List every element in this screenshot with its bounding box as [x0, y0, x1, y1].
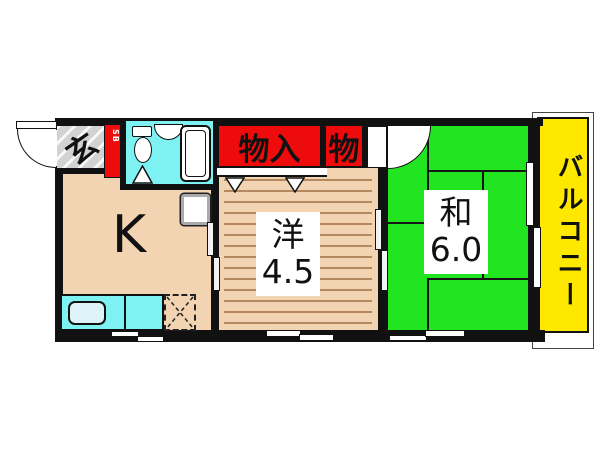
- balcony-window-sash: [533, 227, 541, 288]
- japanese-room-label: 和 6.0: [424, 190, 488, 274]
- balcony: バルコニー: [537, 117, 589, 333]
- kitchen-sink: [68, 301, 106, 325]
- sliding-door-western-japanese: [375, 209, 382, 250]
- western-room-name: 洋: [272, 217, 305, 254]
- tatami-line: [386, 222, 429, 224]
- western-room-window-sash: [299, 334, 334, 341]
- washing-machine-space: [181, 194, 210, 225]
- toilet-tank: [132, 126, 152, 137]
- kitchen-window-sash: [111, 331, 139, 337]
- balcony-window-sash: [526, 162, 534, 226]
- japanese-room-door-leaf: [367, 126, 387, 168]
- entrance-door-arc: [17, 129, 56, 168]
- toilet-bowl: [134, 137, 152, 163]
- sliding-door-kitchen-western: [213, 257, 220, 291]
- refrigerator-space: [164, 294, 196, 331]
- tatami-line: [427, 278, 429, 332]
- entrance-tile-area: 玄: [57, 126, 104, 168]
- japanese-room-window-sash: [425, 330, 465, 337]
- western-room-size: 4.5: [262, 254, 314, 291]
- balcony-label: バルコニー: [539, 127, 587, 339]
- japanese-room-name: 和: [440, 195, 473, 232]
- sliding-door-kitchen-western: [207, 222, 214, 256]
- closet-large-label: 物入: [219, 126, 320, 166]
- kitchen-label: K: [98, 205, 160, 265]
- western-room-label: 洋 4.5: [256, 212, 320, 296]
- shoe-box-label: SB: [105, 129, 120, 143]
- closet-small: 物: [324, 124, 364, 168]
- floor-plan: バルコニー 玄 SB 物入 物: [0, 0, 600, 450]
- bathroom-door-mark: [132, 165, 153, 184]
- closet-door-mark: [225, 177, 245, 193]
- japanese-room-size: 6.0: [430, 232, 482, 269]
- closet-door-mark: [285, 177, 305, 193]
- tatami-line: [427, 170, 530, 172]
- sliding-door-western-japanese: [381, 250, 388, 291]
- closet-sliding-door: [217, 166, 327, 177]
- tatami-line: [427, 278, 530, 280]
- bathtub: [180, 125, 211, 182]
- kitchen-counter: [60, 294, 164, 331]
- bathtub-inner: [185, 130, 206, 177]
- entrance-door-leaf: [16, 121, 57, 129]
- japanese-room-window-sash: [389, 335, 427, 341]
- western-room-window-sash: [266, 330, 301, 337]
- closet-large: 物入: [217, 124, 322, 168]
- kitchen-counter-divider: [124, 296, 126, 329]
- closet-small-label: 物: [326, 126, 362, 166]
- kitchen-window-sash: [137, 336, 164, 342]
- shoe-box: SB: [104, 124, 121, 178]
